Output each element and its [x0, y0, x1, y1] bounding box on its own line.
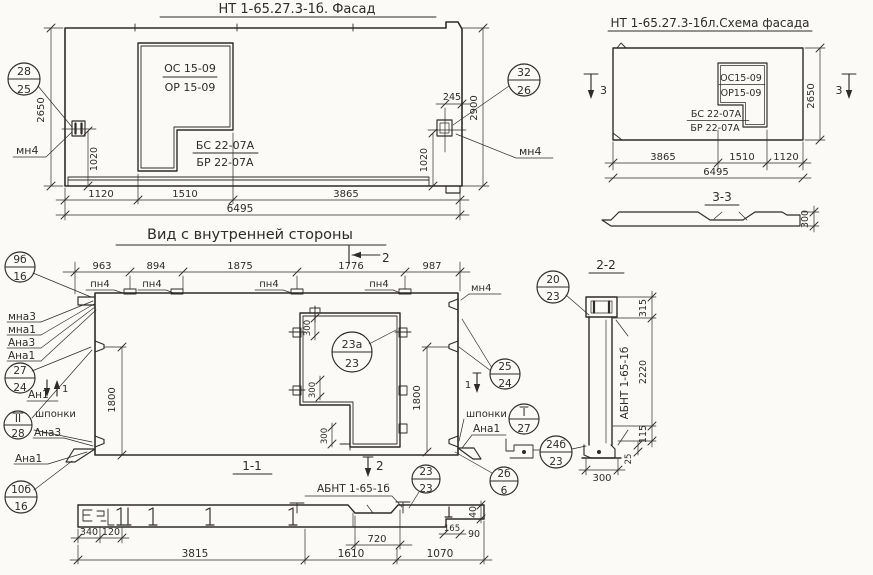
inner-right-ana1: Ана1 [462, 423, 506, 448]
anchor-label: Ана3 [8, 337, 35, 349]
facade-door-label-1: БС 22-07А [196, 139, 255, 152]
callout-9b-16: 9б 16 [5, 252, 91, 297]
drawing-sheet: НТ 1-65.27.3-1б. Фасад ОС 15-09 ОР 15-09… [0, 0, 873, 575]
scheme-window-label-1: ОС15-09 [720, 73, 762, 84]
scheme-panel-details [613, 43, 626, 140]
dim-3865: 3865 [333, 189, 358, 200]
section-1-1-dimensions: 340 120 720 3815 1610 1070 165 40 90 [70, 501, 492, 564]
plate-label: мн4 [519, 145, 542, 158]
anchor-label: Ана1 [15, 453, 42, 465]
scheme-door-label-2: БР 22-07А [690, 123, 740, 134]
section-2-2: 2-2 АБНТ 1-65-1б 315 2220 115 25 300 [579, 258, 656, 484]
keys-label: шпонки [466, 409, 507, 420]
section-2-2-label: АБНТ 1-65-1б [619, 347, 631, 420]
drawing-canvas: НТ 1-65.27.3-1б. Фасад ОС 15-09 ОР 15-09… [0, 0, 873, 575]
callout-bottom: 26 [517, 84, 531, 97]
dim-1510: 1510 [729, 152, 754, 163]
inner-right-section-mark: 1 [465, 373, 481, 393]
facade-panel-outline [65, 22, 462, 186]
dim-245: 245 [443, 92, 461, 103]
abnt-label: АБНТ 1-65-1б [317, 483, 390, 495]
callout-32-26: 32 26 [453, 64, 540, 125]
inner-left-anchor-labels: мна3 мна1 Ана3 Ана1 [7, 301, 96, 362]
dim-3865: 3865 [650, 152, 675, 163]
dim-300: 300 [800, 210, 811, 228]
callout-top: 2б [497, 468, 510, 480]
callout-bottom: 16 [13, 271, 27, 283]
inner-pn4-plates: пн4 пн4 пн4 пн4 [86, 279, 411, 294]
dim-1020-left: 1020 [89, 147, 100, 171]
callout-10b-16: 10б 16 [5, 461, 72, 513]
dim-120: 120 [102, 527, 120, 538]
callout-top: 28 [17, 65, 31, 78]
dim-40: 40 [468, 506, 479, 518]
dim-1800-left: 1800 [107, 387, 118, 412]
pn4-label: пн4 [369, 279, 388, 290]
callout-bottom: 6 [501, 485, 508, 497]
callout-bottom: 24 [498, 378, 512, 390]
inner-panel-outline [95, 293, 458, 455]
callout-bottom: 23 [549, 456, 562, 468]
dim-90: 90 [468, 529, 480, 540]
dim-1776: 1776 [338, 261, 363, 272]
facade-door-label-2: БР 22-07А [196, 156, 254, 169]
keys-label: шпонки [35, 409, 76, 420]
dim-340: 340 [80, 527, 98, 538]
dim-1800-right: 1800 [412, 385, 423, 410]
pn4-label: пн4 [259, 279, 278, 290]
callout-bottom: 24 [13, 382, 27, 394]
callout-top: 32 [517, 66, 531, 79]
scheme-view: НТ 1-65.27.3-1бл.Схема фасада ОС15-09 ОР… [584, 16, 856, 232]
anchor-label: Ана3 [34, 427, 61, 439]
callout-bottom: 23 [419, 483, 432, 495]
anchor-label: Ана1 [8, 350, 35, 362]
callout-top: 27 [13, 365, 26, 377]
callout-bottom: 25 [17, 83, 31, 96]
inner-panel-edge-details [66, 297, 481, 462]
dim-300: 300 [303, 320, 313, 336]
facade-view: НТ 1-65.27.3-1б. Фасад ОС 15-09 ОР 15-09… [8, 2, 553, 220]
section-mark-3: 3 [836, 84, 843, 97]
dim-300: 300 [592, 473, 611, 484]
callout-top: 9б [13, 254, 26, 266]
callout-bottom: 16 [14, 501, 28, 513]
dim-165: 165 [444, 524, 460, 534]
dim-6495: 6495 [227, 203, 254, 215]
inner-right-mn4: мн4 [461, 283, 501, 300]
section-1-1-title: 1-1 [242, 459, 262, 473]
facade-plate-left-label: мн4 [13, 132, 72, 157]
scheme-title: НТ 1-65.27.3-1бл.Схема фасада [610, 16, 809, 30]
section-mark-2: 2 [382, 251, 390, 265]
section-3-3: 3-3 300 [602, 190, 819, 232]
facade-window-label-2: ОР 15-09 [165, 81, 216, 94]
callout-top: 24б [546, 439, 566, 451]
dim-315: 315 [638, 299, 649, 317]
callout-top: 20 [546, 274, 559, 286]
facade-plate-right [428, 108, 466, 152]
dim-25: 25 [624, 454, 634, 465]
dim-1510: 1510 [172, 189, 197, 200]
dim-2650: 2650 [36, 97, 47, 122]
callout-2b-6: 2б 6 [455, 452, 518, 497]
section-1-1: 1-1 2 АБНТ 1-65-1б 23 23 340 120 [70, 457, 492, 564]
section-1-1-mark-2: 2 [363, 457, 384, 477]
dim-1120: 1120 [88, 189, 113, 200]
plate-label: мн4 [16, 144, 39, 157]
callout-23a-23: 23а 23 [332, 330, 396, 372]
dim-300: 300 [320, 428, 330, 444]
scheme-section-mark-right: 3 [836, 74, 857, 99]
section-mark-1: 1 [62, 384, 68, 395]
inner-title: Вид с внутренней стороны [147, 227, 353, 243]
dim-963: 963 [92, 261, 111, 272]
facade-panel-details [68, 24, 460, 193]
section-2-2-body [582, 297, 621, 458]
callout-top: II [15, 413, 21, 425]
section-mark-3: 3 [600, 84, 607, 97]
dim-1875: 1875 [227, 261, 252, 272]
dim-2650: 2650 [806, 83, 817, 108]
dim-6495: 6495 [703, 167, 728, 178]
inner-corner-detail [506, 439, 533, 458]
section-3-3-title: 3-3 [712, 190, 732, 204]
dim-3815: 3815 [182, 548, 209, 560]
section-1-1-label: АБНТ 1-65-1б [305, 483, 402, 507]
scheme-door-label-1: БС 22-07А [691, 109, 742, 120]
section-3-3-profile [602, 212, 800, 226]
dim-894: 894 [146, 261, 165, 272]
dim-115: 115 [638, 425, 649, 443]
section-1-1-profile [78, 502, 484, 527]
callout-bottom: 27 [517, 423, 530, 435]
dim-1070: 1070 [427, 548, 454, 560]
dim-987: 987 [422, 261, 441, 272]
section-2-2-dimensions: 315 2220 115 25 300 [579, 291, 656, 484]
scheme-window-label-2: ОР15-09 [721, 88, 762, 99]
pn4-label: пн4 [142, 279, 161, 290]
callout-top: 23 [419, 466, 432, 478]
dim-1120: 1120 [773, 152, 798, 163]
dim-2900: 2900 [469, 95, 480, 120]
pn4-label: пн4 [90, 279, 109, 290]
plate-label: мн4 [471, 283, 491, 294]
inner-left-an1-and-section-mark: Ан1 1 [27, 380, 68, 401]
dim-1020-right: 1020 [419, 148, 430, 172]
section-mark-1: 1 [465, 380, 471, 391]
inner-left-ana-labels: Ана3 Ана1 [14, 427, 93, 465]
callout-top: 23а [342, 338, 363, 351]
callout-bottom: 23 [345, 357, 359, 370]
callout-top: 10б [11, 484, 31, 496]
dim-720: 720 [367, 534, 386, 545]
callout-top: I [522, 407, 525, 419]
inner-view: Вид с внутренней стороны 2 963 894 1875 … [4, 227, 589, 513]
inner-opening-dims-300: 300 300 300 [303, 313, 336, 448]
callout-bottom: 28 [11, 428, 24, 440]
dim-300: 300 [308, 382, 318, 398]
dim-1610: 1610 [338, 548, 365, 560]
callout-20-23: 20 23 [537, 271, 589, 315]
scheme-section-mark-left: 3 [584, 74, 607, 99]
anchor-label: мна3 [8, 311, 36, 323]
facade-window-label-1: ОС 15-09 [164, 62, 216, 75]
facade-dimensions: 2650 1020 2900 245 1020 1120 1510 3865 6… [36, 24, 489, 220]
callout-23-23: 23 23 [409, 465, 440, 508]
callout-bottom: 23 [546, 291, 559, 303]
anchor-label: Ана1 [473, 423, 500, 435]
section-mark-2: 2 [376, 459, 384, 473]
section-2-2-title: 2-2 [596, 258, 616, 272]
callout-24b-23: 24б 23 [533, 436, 586, 468]
facade-title: НТ 1-65.27.3-1б. Фасад [219, 2, 376, 17]
callout-top: 25 [498, 361, 511, 373]
facade-plate-right-label: мн4 [456, 134, 553, 158]
anchor-label: мна1 [8, 324, 36, 336]
dim-2220: 2220 [638, 360, 649, 384]
